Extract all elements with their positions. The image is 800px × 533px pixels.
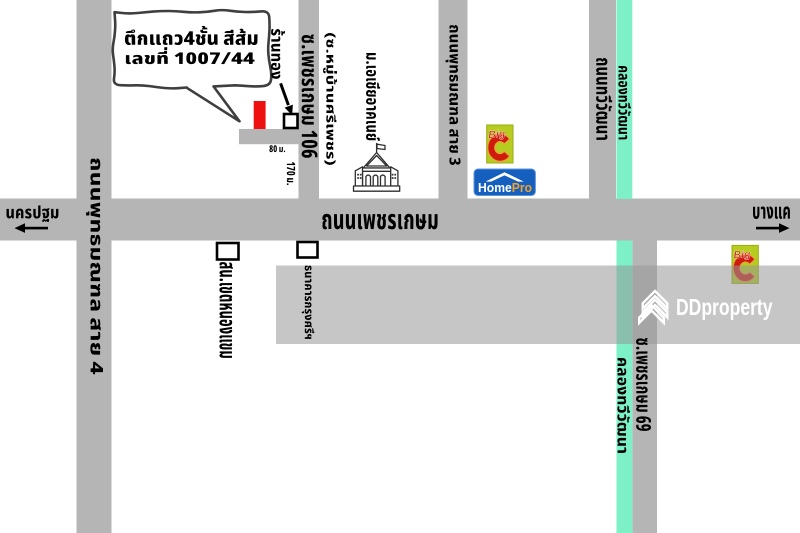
- svg-text:HomePro: HomePro: [478, 180, 532, 195]
- svg-text:DDproperty: DDproperty: [676, 294, 773, 320]
- svg-text:Big: Big: [733, 248, 751, 261]
- svg-text:Big: Big: [488, 128, 506, 141]
